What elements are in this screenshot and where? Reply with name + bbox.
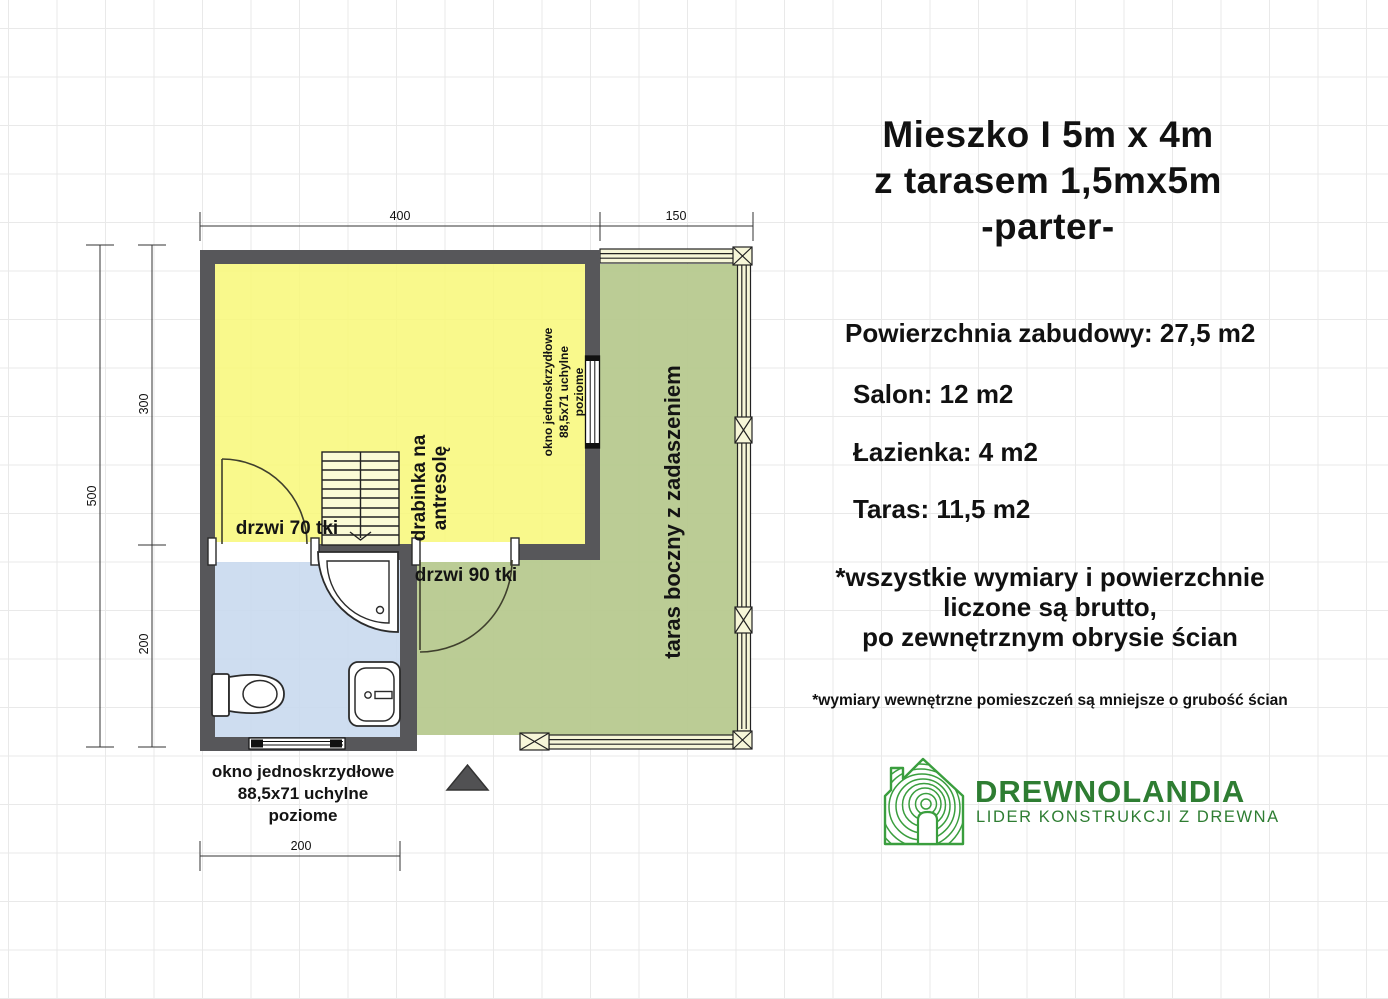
logo-name: DREWNOLANDIA — [975, 774, 1245, 810]
window-bottom-label-line2: 88,5x71 uchylne — [238, 784, 368, 803]
wall-top — [200, 250, 600, 264]
title-line1: Mieszko I 5m x 4m — [832, 112, 1264, 158]
title-line3: -parter- — [832, 204, 1264, 250]
window-right-label-line3: poziome — [572, 367, 586, 416]
dim-top-main: 400 — [390, 209, 411, 223]
faucet-handle-icon — [375, 692, 392, 699]
dim-top-terrace: 150 — [666, 209, 687, 223]
terrace-post-bottom-right — [733, 731, 752, 749]
ladder-label-line1: drabinka na — [409, 434, 430, 541]
logo: DREWNOLANDIA LIDER KONSTRUKCJI Z DREWNA — [878, 752, 1278, 852]
spec-built-area: Powierzchnia zabudowy: 27,5 m2 — [845, 318, 1255, 349]
window-right-label-line2: 88,5x71 uchylne — [557, 346, 571, 438]
salon-room — [215, 264, 585, 544]
dim-left-lower: 200 — [137, 634, 151, 655]
entrance-arrow-icon — [447, 765, 488, 790]
door-jamb — [208, 538, 216, 565]
dim-bottom: 200 — [291, 839, 312, 853]
window-bottom-label-line1: okno jednoskrzydłowe — [212, 762, 394, 781]
terrace-label: taras boczny z zadaszeniem — [660, 365, 685, 658]
terrace-post-right-upper — [735, 417, 752, 443]
spec-bathroom: Łazienka: 4 m2 — [853, 437, 1038, 468]
dim-left-total: 500 — [85, 486, 99, 507]
page-title: Mieszko I 5m x 4m z tarasem 1,5mx5m -par… — [832, 112, 1264, 250]
gross-dimensions-note: *wszystkie wymiary i powierzchnie liczon… — [820, 562, 1280, 652]
terrace-post-bottom-left — [520, 733, 549, 750]
shower-drain-icon — [377, 607, 384, 614]
faucet-icon — [365, 692, 371, 698]
gross-note-line3: po zewnętrznym obrysie ścian — [820, 622, 1280, 652]
logo-tagline: LIDER KONSTRUKCJI Z DREWNA — [976, 808, 1280, 827]
window-bottom-label-line3: poziome — [269, 806, 338, 825]
door-70-label: drzwi 70 tki — [236, 518, 338, 539]
title-line2: z tarasem 1,5mx5m — [832, 158, 1264, 204]
gross-note-line1: *wszystkie wymiary i powierzchnie — [820, 562, 1280, 592]
dim-left-upper: 300 — [137, 394, 151, 415]
window-right — [586, 356, 600, 448]
door-90-label: drzwi 90 tki — [415, 565, 517, 586]
terrace-post-right-lower — [735, 607, 752, 633]
sink — [349, 662, 400, 726]
internal-dimensions-note: *wymiary wewnętrzne pomieszczeń są mniej… — [810, 692, 1290, 710]
gross-note-line2: liczone są brutto, — [820, 592, 1280, 622]
logo-house-icon — [878, 754, 968, 849]
window-bottom — [249, 738, 345, 749]
ladder-label-line2: antresolę — [430, 446, 451, 530]
logo-house-door — [918, 812, 937, 844]
toilet — [212, 674, 284, 716]
terrace-post-top-right — [733, 247, 752, 265]
window-right-label-line1: okno jednoskrzydłowe — [541, 327, 555, 456]
spec-terrace: Taras: 11,5 m2 — [853, 494, 1030, 525]
spec-salon: Salon: 12 m2 — [853, 379, 1013, 410]
